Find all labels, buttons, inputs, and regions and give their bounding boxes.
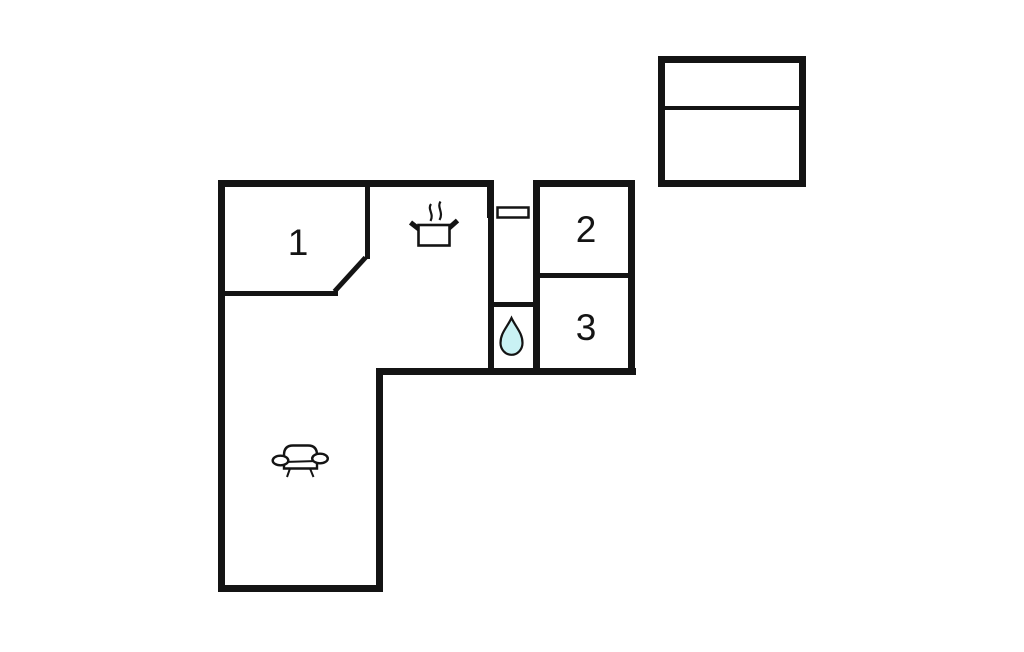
sofa-icon (273, 446, 328, 478)
annex-outline (662, 60, 803, 184)
wall-living-right (376, 368, 383, 592)
room-2-label: 2 (576, 209, 597, 250)
wall-room1-diagonal (335, 258, 366, 292)
sofa-armrest-right (312, 454, 328, 464)
wall-hallway-left (488, 180, 494, 370)
wall-bottom-right-section (376, 368, 636, 375)
room-1-label: 1 (288, 222, 309, 263)
wall-room2-room3-divider (540, 273, 628, 278)
water-drop-icon (501, 318, 523, 355)
annex-building (662, 60, 803, 184)
sofa-leg-left (287, 469, 290, 478)
wall-bathroom-top (494, 302, 533, 307)
wall-top-right-section (533, 180, 635, 187)
wall-room1-bottom (225, 291, 338, 296)
pot-body (419, 225, 450, 246)
wall-rooms-block-left (533, 180, 540, 375)
sofa-leg-right (310, 469, 314, 478)
wall-room1-right (365, 187, 370, 259)
water-drop-shape (501, 318, 523, 355)
wall-bottom (218, 585, 383, 592)
steam-line-right (439, 202, 441, 221)
room-3-label: 3 (576, 307, 597, 348)
main-building: 1 2 3 (218, 180, 636, 592)
wall-right (628, 180, 635, 375)
entrance-door (498, 208, 529, 218)
floorplan-canvas: 1 2 3 (0, 0, 1024, 652)
wall-top-left-section (218, 180, 494, 187)
steam-line-left (430, 204, 432, 221)
sofa-armrest-left (273, 456, 289, 466)
wall-left (218, 180, 225, 592)
interior-walls (225, 187, 628, 307)
floorplan-svg: 1 2 3 (0, 0, 1024, 652)
stove-pot-icon (411, 202, 458, 246)
